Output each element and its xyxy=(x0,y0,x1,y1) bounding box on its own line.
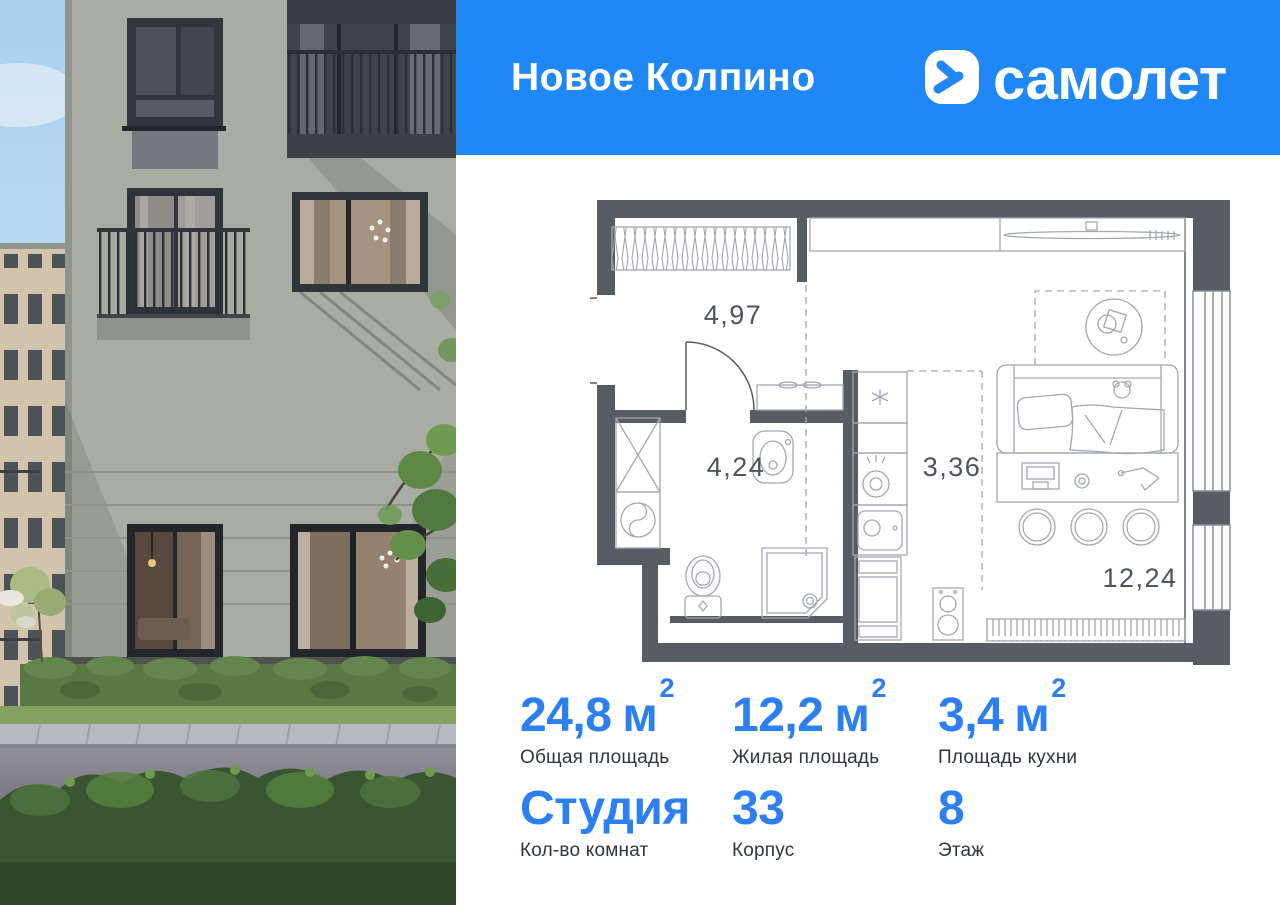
stat-rooms-value: Студия xyxy=(520,787,735,831)
stat-kitchen-area-label: Площадь кухни xyxy=(938,747,1153,769)
apartment-listing-card: Новое Колпино самолет xyxy=(0,0,1280,905)
radiator xyxy=(987,619,1185,641)
stat-total-area-value: 24,8м2 xyxy=(520,683,735,738)
building-photo-illustration xyxy=(0,0,456,905)
sidewalk xyxy=(0,724,456,748)
stat-rooms: Студия Кол-во комнат xyxy=(520,787,735,862)
hallway-wardrobe xyxy=(612,227,790,270)
sofa-bed xyxy=(997,365,1178,454)
window-glazing xyxy=(1193,291,1230,610)
hallway-console xyxy=(757,382,843,410)
desk xyxy=(997,453,1178,502)
stat-building-label: Корпус xyxy=(732,840,947,862)
kitchen-sink xyxy=(853,505,907,555)
developer-logo: самолет xyxy=(924,49,1227,110)
floor-plan-drawing: 4,97 4,24 3,36 12,24 xyxy=(590,195,1235,670)
washing-machine xyxy=(616,418,660,492)
stat-rooms-label: Кол-во комнат xyxy=(520,840,735,862)
water-heater xyxy=(616,492,660,548)
entrance-door xyxy=(590,298,597,383)
stove xyxy=(933,588,963,640)
zone-boundaries xyxy=(806,285,1165,590)
stat-building: 33 Корпус xyxy=(732,787,947,862)
upper-balcony xyxy=(287,0,456,158)
kitchen-counter xyxy=(853,423,907,453)
hedge xyxy=(20,656,456,712)
stat-floor-value: 8 xyxy=(938,787,1153,831)
stat-total-area-label: Общая площадь xyxy=(520,747,735,769)
living-room-area-label: 12,24 xyxy=(1102,563,1177,593)
ground-floor-window-left xyxy=(127,524,223,657)
stat-kitchen-area: 3,4м2 Площадь кухни xyxy=(938,683,1153,769)
bathroom-door xyxy=(686,342,754,410)
fridge xyxy=(853,372,907,423)
stat-living-area-value: 12,2м2 xyxy=(732,683,947,738)
bathroom-area-label: 4,24 xyxy=(707,452,766,482)
stat-kitchen-area-value: 3,4м2 xyxy=(938,683,1153,738)
kitchen-cabinet xyxy=(855,557,901,640)
stat-total-area: 24,8м2 Общая площадь xyxy=(520,683,735,769)
stat-building-value: 33 xyxy=(732,787,947,831)
kitchen-area-label: 3,36 xyxy=(923,452,982,482)
project-title: Новое Колпино xyxy=(511,56,816,100)
building-photo xyxy=(0,0,456,905)
project-banner: Новое Колпино самолет xyxy=(456,0,1280,155)
upper-window xyxy=(122,18,226,169)
stat-floor: 8 Этаж xyxy=(938,787,1153,862)
round-table xyxy=(1086,299,1142,355)
shower xyxy=(762,548,827,618)
stat-living-area-label: Жилая площадь xyxy=(732,747,947,769)
foreground-bushes xyxy=(0,765,456,905)
stools xyxy=(1019,509,1159,545)
floor-plan: 4,97 4,24 3,36 12,24 xyxy=(590,195,1235,670)
closet xyxy=(810,218,1185,251)
hallway-area-label: 4,97 xyxy=(704,300,763,330)
samolet-logo-icon xyxy=(924,49,980,110)
stat-living-area: 12,2м2 Жилая площадь xyxy=(732,683,947,769)
grass-strip xyxy=(0,706,456,726)
stat-floor-label: Этаж xyxy=(938,840,1153,862)
kitchen-boiler xyxy=(853,453,907,505)
toilet xyxy=(685,556,721,618)
samolet-wordmark: самолет xyxy=(993,52,1227,108)
